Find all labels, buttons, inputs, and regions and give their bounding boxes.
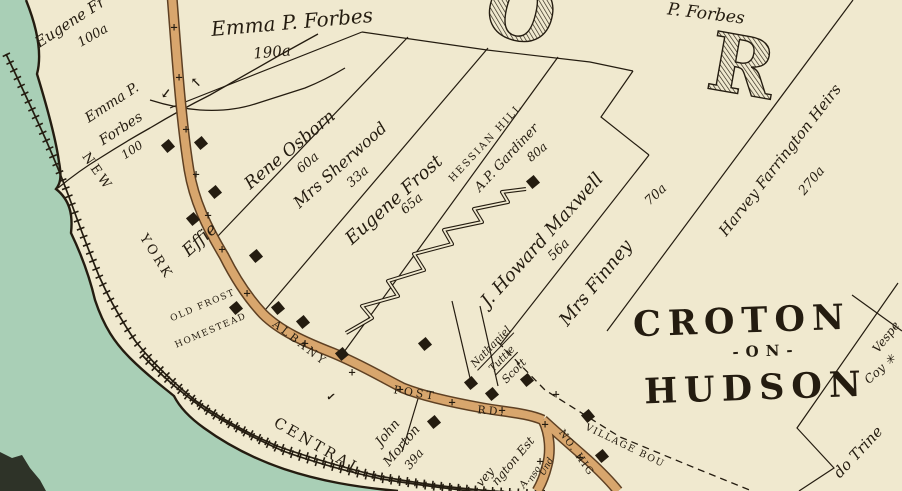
road-cross-mark: + (541, 420, 549, 431)
road-cross-mark: + (243, 289, 251, 300)
place-label-on: -ON- (732, 341, 800, 361)
place-label-croton: CROTON (632, 297, 851, 346)
acreage-label: 190a (252, 41, 291, 62)
road-cross-mark: + (348, 368, 356, 379)
road-cross-mark: + (182, 125, 190, 136)
road-cross-mark: + (192, 170, 200, 181)
survey-arrow-icon: ↙ (160, 86, 173, 102)
map-viewport: ++++++++++++++++ Eugene Fr100aEmma P. Fo… (0, 0, 902, 491)
atlas-map-croton-on-hudson: ++++++++++++++++ Eugene Fr100aEmma P. Fo… (0, 0, 902, 491)
road-cross-mark: + (552, 390, 560, 401)
road-cross-mark: + (218, 245, 226, 256)
place-label-hudson: HUDSON (644, 364, 869, 413)
road-label-rd: RD. (477, 403, 507, 418)
road-cross-mark: + (448, 398, 456, 409)
survey-arrow-icon: ↖ (191, 76, 202, 91)
road-cross-mark: + (170, 23, 178, 34)
road-cross-mark: + (175, 73, 183, 84)
